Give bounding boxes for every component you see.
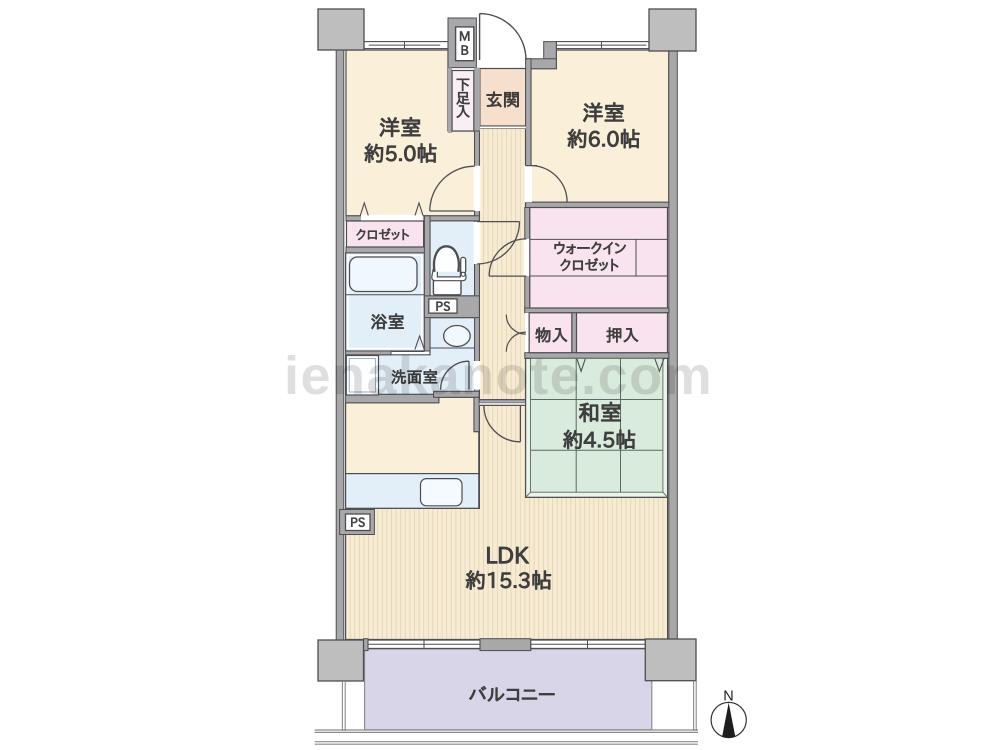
svg-text:ienakanote.com: ienakanote.com	[284, 346, 713, 406]
